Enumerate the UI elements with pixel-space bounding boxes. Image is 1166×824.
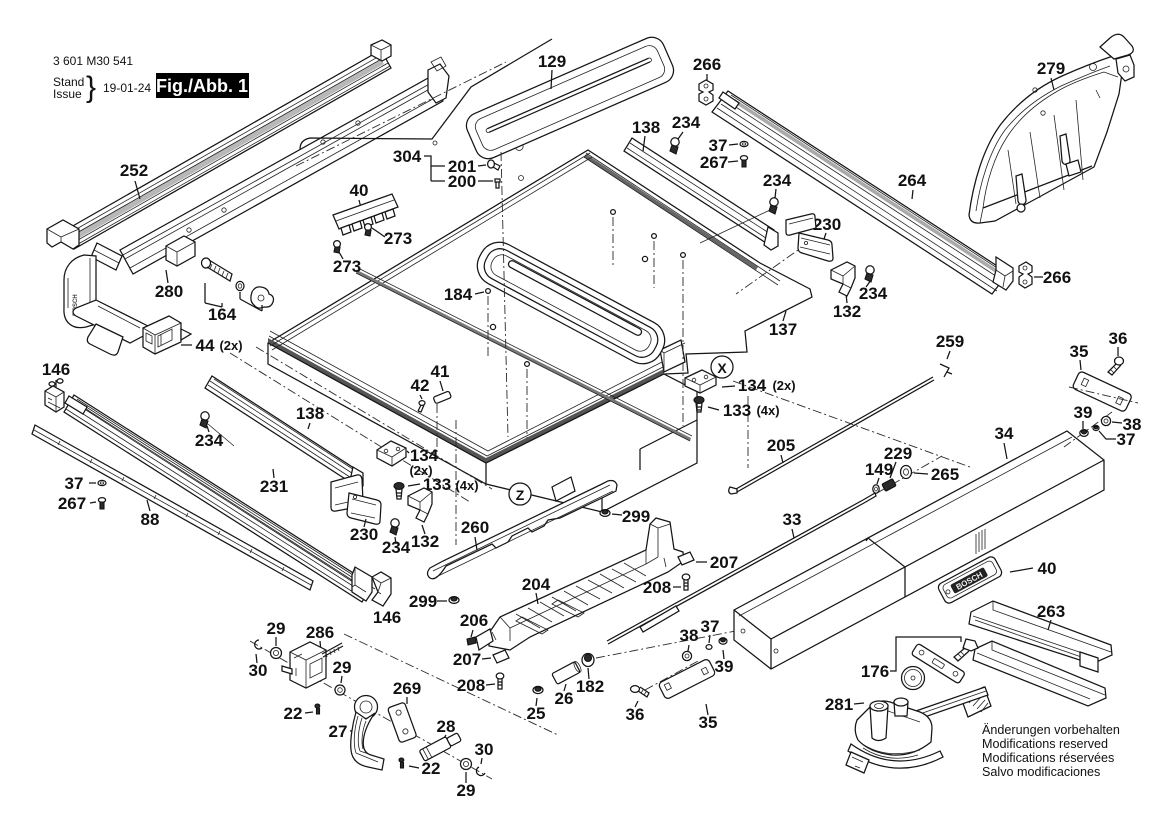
svg-text:234: 234 [382, 538, 411, 557]
svg-text:299: 299 [622, 507, 650, 526]
svg-text:207: 207 [453, 650, 481, 669]
svg-text:146: 146 [373, 608, 401, 627]
svg-text:230: 230 [350, 525, 378, 544]
svg-text:266: 266 [693, 55, 721, 74]
svg-text:34: 34 [995, 424, 1014, 443]
svg-text:129: 129 [538, 52, 566, 71]
svg-text:286: 286 [306, 623, 334, 642]
svg-text:281: 281 [825, 695, 853, 714]
svg-text:30: 30 [249, 661, 268, 680]
svg-text:Z: Z [516, 487, 525, 503]
svg-text:208: 208 [643, 578, 671, 597]
svg-text:37: 37 [1117, 430, 1136, 449]
svg-text:207: 207 [710, 553, 738, 572]
svg-text:266: 266 [1043, 268, 1071, 287]
svg-text:299: 299 [409, 592, 437, 611]
svg-text:33: 33 [783, 510, 802, 529]
svg-text:(2x): (2x) [219, 338, 242, 353]
svg-text:40: 40 [350, 181, 369, 200]
svg-text:208: 208 [457, 676, 485, 695]
svg-text:22: 22 [422, 759, 441, 778]
svg-text:28: 28 [437, 717, 456, 736]
svg-text:27: 27 [329, 722, 348, 741]
svg-text:26: 26 [555, 689, 574, 708]
svg-text:204: 204 [522, 575, 551, 594]
svg-text:(4x): (4x) [455, 478, 478, 493]
svg-text:132: 132 [833, 302, 861, 321]
svg-text:38: 38 [680, 626, 699, 645]
svg-text:234: 234 [763, 171, 792, 190]
svg-text:132: 132 [411, 532, 439, 551]
svg-text:35: 35 [699, 713, 718, 732]
svg-text:35: 35 [1070, 342, 1089, 361]
svg-text:260: 260 [461, 518, 489, 537]
svg-text:269: 269 [393, 679, 421, 698]
svg-text:}: } [86, 71, 96, 104]
svg-text:30: 30 [475, 740, 494, 759]
svg-text:44: 44 [196, 336, 215, 355]
svg-text:273: 273 [384, 229, 412, 248]
svg-text:37: 37 [701, 617, 720, 636]
svg-text:39: 39 [1074, 403, 1093, 422]
svg-text:164: 164 [208, 305, 237, 324]
svg-text:273: 273 [333, 257, 361, 276]
svg-text:42: 42 [411, 376, 430, 395]
svg-text:138: 138 [632, 118, 660, 137]
svg-text:29: 29 [333, 658, 352, 677]
svg-text:265: 265 [931, 465, 959, 484]
svg-text:205: 205 [767, 436, 795, 455]
svg-text:234: 234 [672, 113, 701, 132]
svg-text:182: 182 [576, 677, 604, 696]
svg-text:264: 264 [898, 171, 927, 190]
svg-text:25: 25 [527, 704, 546, 723]
svg-text:229: 229 [884, 444, 912, 463]
svg-text:19-01-24: 19-01-24 [103, 81, 151, 95]
svg-text:41: 41 [431, 362, 450, 381]
svg-text:200: 200 [448, 172, 476, 191]
svg-text:280: 280 [155, 282, 183, 301]
svg-text:231: 231 [260, 477, 288, 496]
svg-text:Modifications réservées: Modifications réservées [982, 751, 1114, 765]
svg-text:22: 22 [284, 704, 303, 723]
svg-text:146: 146 [42, 360, 70, 379]
svg-text:252: 252 [120, 161, 148, 180]
svg-text:3 601 M30 541: 3 601 M30 541 [53, 54, 133, 68]
svg-text:234: 234 [859, 284, 888, 303]
svg-text:(2x): (2x) [772, 378, 795, 393]
svg-text:133: 133 [723, 401, 751, 420]
svg-text:Modifications reserved: Modifications reserved [982, 737, 1108, 751]
svg-text:263: 263 [1037, 602, 1065, 621]
svg-text:88: 88 [141, 510, 160, 529]
svg-text:Änderungen vorbehalten: Änderungen vorbehalten [982, 723, 1120, 737]
svg-text:267: 267 [58, 494, 86, 513]
svg-text:137: 137 [769, 320, 797, 339]
svg-text:134: 134 [738, 376, 767, 395]
svg-text:Salvo modificaciones: Salvo modificaciones [982, 765, 1100, 779]
svg-text:259: 259 [936, 332, 964, 351]
svg-text:138: 138 [296, 404, 324, 423]
svg-text:X: X [717, 360, 727, 376]
svg-text:Issue: Issue [53, 87, 82, 101]
svg-text:279: 279 [1037, 59, 1065, 78]
svg-text:37: 37 [65, 474, 84, 493]
svg-text:206: 206 [460, 611, 488, 630]
svg-text:40: 40 [1038, 559, 1057, 578]
svg-text:29: 29 [457, 781, 476, 800]
svg-text:304: 304 [393, 147, 422, 166]
svg-text:267: 267 [700, 153, 728, 172]
svg-text:(4x): (4x) [756, 403, 779, 418]
svg-text:230: 230 [813, 215, 841, 234]
svg-text:29: 29 [267, 619, 286, 638]
svg-text:Fig./Abb. 1: Fig./Abb. 1 [156, 76, 248, 96]
svg-text:36: 36 [626, 705, 645, 724]
svg-text:36: 36 [1109, 329, 1128, 348]
svg-text:176: 176 [861, 662, 889, 681]
svg-text:184: 184 [444, 285, 473, 304]
svg-text:39: 39 [715, 657, 734, 676]
